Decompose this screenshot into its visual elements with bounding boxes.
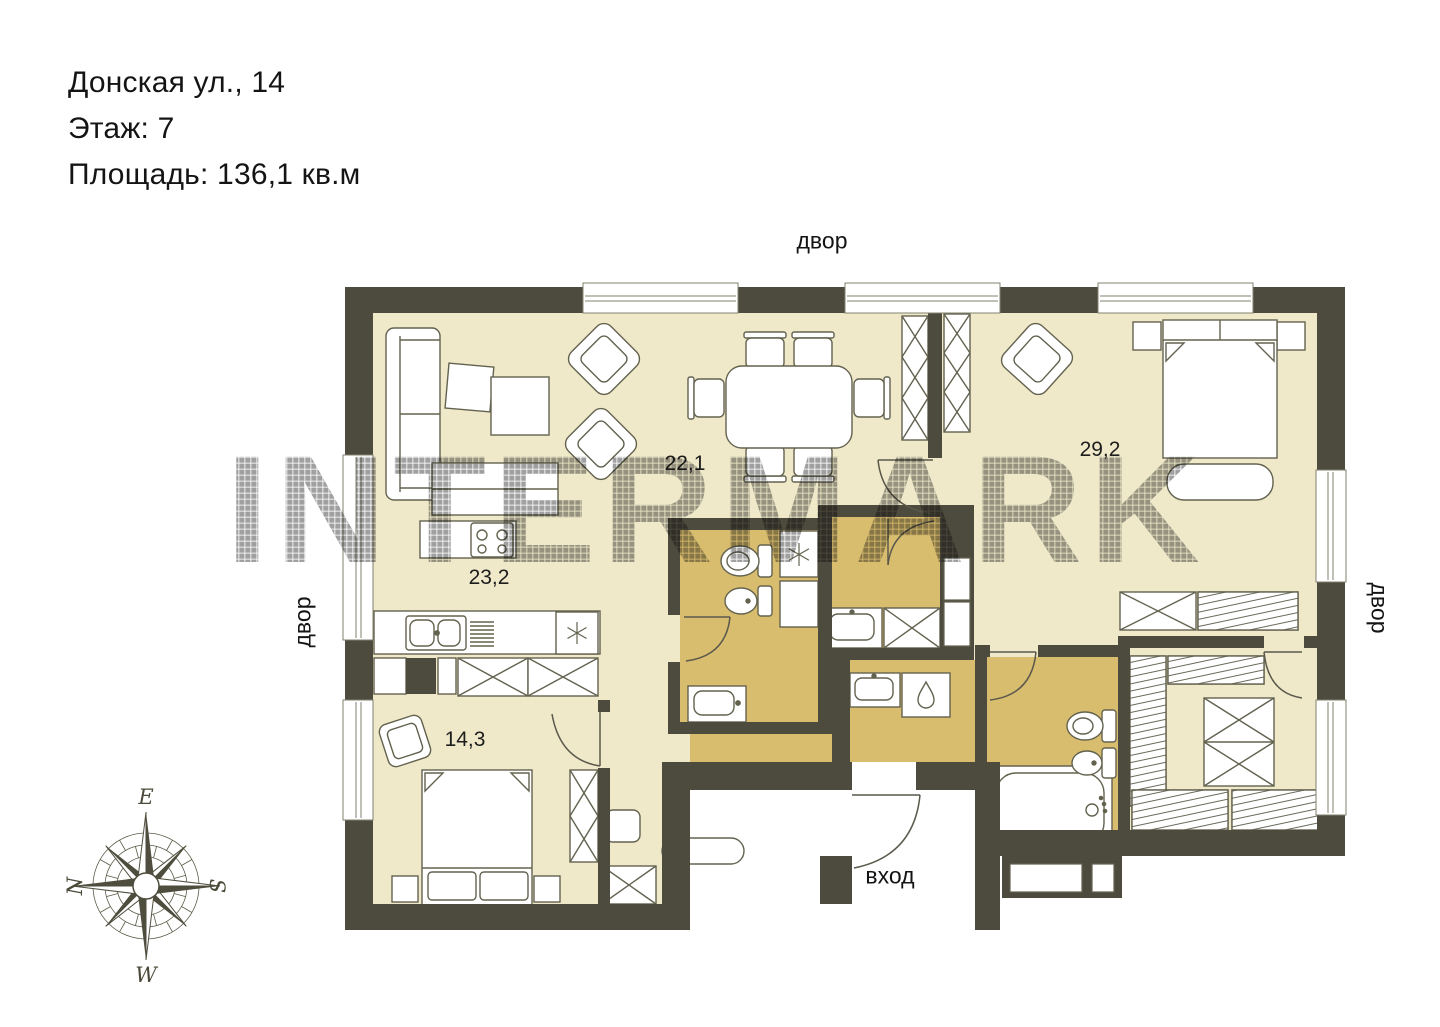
compass-letter-west: W (135, 963, 157, 987)
courtyard-label-top: двор (797, 228, 848, 255)
compass-letter-east: E (138, 785, 153, 809)
window (1316, 700, 1346, 815)
room-area-bedroom-left: 14,3 (445, 728, 486, 752)
window (583, 283, 738, 313)
wardrobe-x (570, 770, 598, 862)
nightstand (1133, 322, 1161, 350)
freezer (556, 612, 598, 654)
washbasin (688, 686, 746, 722)
entry-vestibule-floor (852, 790, 975, 930)
floorplan-page: Донская ул., 14 Этаж: 7 Площадь: 136,1 к… (0, 0, 1440, 1027)
pouf (606, 810, 640, 842)
nightstand (1277, 322, 1305, 350)
toilet (1067, 710, 1116, 742)
window (1098, 283, 1253, 313)
bidet (1072, 748, 1116, 778)
water-heater (902, 673, 950, 717)
compass-center (133, 873, 159, 899)
wardrobe-x (902, 316, 928, 440)
compass-letter-south: S (205, 879, 229, 893)
double-bed (422, 770, 532, 906)
entrance-label: вход (865, 863, 914, 890)
washbasin (850, 673, 900, 707)
compass-rose: E S W N (66, 786, 226, 986)
washing-machine (884, 608, 940, 648)
window (1316, 470, 1346, 582)
cabinet-x (602, 866, 656, 904)
courtyard-label-left: двор (290, 597, 317, 648)
nightstand (392, 876, 418, 902)
window (343, 700, 373, 820)
washbasin (824, 608, 882, 648)
compass-letter-north: N (63, 877, 87, 895)
compass-graphic (66, 786, 226, 986)
nightstand (534, 876, 560, 902)
wardrobe-x (944, 314, 970, 432)
closet-island (1204, 698, 1274, 786)
window (845, 283, 1000, 313)
dresser (1120, 592, 1298, 630)
hall-floor (690, 734, 850, 762)
watermark: INTERMARK (226, 430, 1226, 590)
courtyard-label-right: двор (1366, 583, 1393, 634)
